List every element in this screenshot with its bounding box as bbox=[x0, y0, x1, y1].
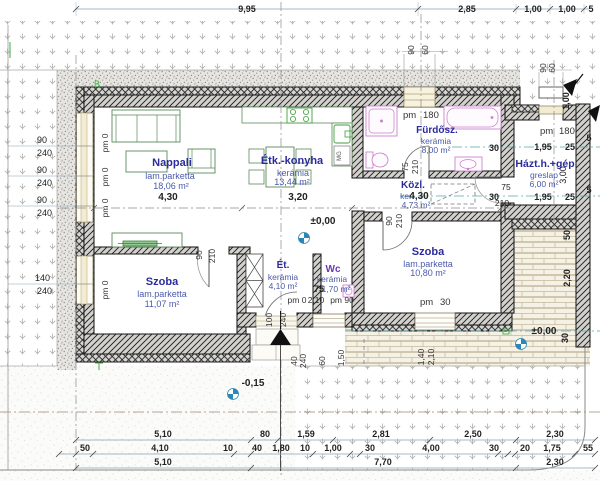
svg-text:90: 90 bbox=[406, 45, 416, 55]
svg-text:40: 40 bbox=[252, 443, 262, 453]
svg-text:2,20: 2,20 bbox=[562, 269, 572, 287]
svg-text:B: B bbox=[94, 79, 100, 89]
svg-text:210: 210 bbox=[410, 160, 420, 174]
svg-text:240: 240 bbox=[37, 286, 52, 296]
svg-text:11,07 m²: 11,07 m² bbox=[145, 299, 180, 309]
svg-text:13,44 m²: 13,44 m² bbox=[274, 177, 310, 187]
svg-text:Szoba: Szoba bbox=[146, 276, 179, 288]
svg-text:50: 50 bbox=[80, 443, 90, 453]
svg-text:1,95: 1,95 bbox=[534, 142, 552, 152]
svg-text:30: 30 bbox=[365, 443, 375, 453]
svg-text:2,50: 2,50 bbox=[464, 429, 482, 439]
svg-text:1,00: 1,00 bbox=[524, 4, 542, 14]
svg-text:MG: MG bbox=[337, 151, 343, 161]
svg-text:25: 25 bbox=[565, 192, 575, 202]
svg-text:18,06 m²: 18,06 m² bbox=[153, 181, 189, 191]
svg-text:Ét.: Ét. bbox=[277, 258, 290, 271]
svg-text:60: 60 bbox=[317, 356, 327, 366]
svg-text:Fürdősz.: Fürdősz. bbox=[416, 125, 458, 136]
svg-text:20: 20 bbox=[520, 443, 530, 453]
svg-text:6,00 m²: 6,00 m² bbox=[530, 179, 559, 189]
svg-text:-0,15: -0,15 bbox=[242, 378, 265, 389]
svg-text:90: 90 bbox=[37, 165, 47, 175]
svg-text:1,59: 1,59 bbox=[297, 429, 315, 439]
svg-text:3,20: 3,20 bbox=[288, 192, 308, 203]
svg-text:60: 60 bbox=[420, 45, 430, 55]
svg-text:90: 90 bbox=[194, 250, 204, 260]
svg-text:1,75: 1,75 bbox=[543, 443, 561, 453]
svg-text:8,00 m²: 8,00 m² bbox=[422, 145, 451, 155]
svg-text:2,10: 2,10 bbox=[426, 348, 436, 365]
svg-text:5: 5 bbox=[588, 4, 593, 14]
svg-text:60: 60 bbox=[547, 63, 557, 73]
svg-text:pm 0: pm 0 bbox=[288, 295, 307, 305]
svg-text:1,00: 1,00 bbox=[561, 92, 571, 110]
svg-text:1,50: 1,50 bbox=[336, 349, 346, 366]
svg-text:Étk.-konyha: Étk.-konyha bbox=[261, 154, 324, 167]
svg-text:5,10: 5,10 bbox=[154, 457, 172, 467]
svg-text:pm 0: pm 0 bbox=[100, 198, 110, 217]
svg-text:240: 240 bbox=[37, 178, 52, 188]
svg-text:2,30: 2,30 bbox=[546, 429, 564, 439]
svg-text:Szoba: Szoba bbox=[412, 246, 445, 258]
svg-text:4,00: 4,00 bbox=[422, 443, 440, 453]
svg-text:1,70 m²: 1,70 m² bbox=[322, 284, 351, 294]
svg-text:4,30: 4,30 bbox=[158, 192, 178, 203]
svg-text:75: 75 bbox=[400, 162, 410, 172]
svg-text:Közl.: Közl. bbox=[401, 180, 425, 191]
svg-text:100: 100 bbox=[264, 313, 274, 327]
svg-text:25: 25 bbox=[565, 142, 575, 152]
svg-text:10: 10 bbox=[300, 443, 310, 453]
svg-text:±0,00: ±0,00 bbox=[311, 216, 336, 227]
svg-text:55: 55 bbox=[583, 443, 593, 453]
svg-text:90: 90 bbox=[37, 195, 47, 205]
svg-text:90: 90 bbox=[384, 216, 394, 226]
svg-text:2,81: 2,81 bbox=[372, 429, 390, 439]
svg-text:9,95: 9,95 bbox=[238, 4, 256, 14]
svg-text:50: 50 bbox=[562, 230, 572, 240]
svg-text:±0,00: ±0,00 bbox=[532, 326, 557, 337]
svg-text:80: 80 bbox=[260, 429, 270, 439]
svg-text:4,73 m²: 4,73 m² bbox=[402, 200, 431, 210]
svg-text:4,10 m²: 4,10 m² bbox=[269, 281, 298, 291]
svg-text:30: 30 bbox=[560, 333, 570, 343]
svg-text:1,00: 1,00 bbox=[558, 4, 576, 14]
svg-text:30: 30 bbox=[489, 443, 499, 453]
svg-text:5: 5 bbox=[586, 185, 591, 195]
svg-text:7,70: 7,70 bbox=[374, 457, 392, 467]
svg-text:pm 0: pm 0 bbox=[100, 280, 110, 299]
svg-text:75: 75 bbox=[501, 182, 511, 192]
svg-text:3,00: 3,00 bbox=[558, 166, 568, 184]
svg-text:90: 90 bbox=[37, 135, 47, 145]
svg-text:240: 240 bbox=[278, 313, 288, 327]
svg-text:pm 90: pm 90 bbox=[330, 295, 354, 305]
svg-text:1,40: 1,40 bbox=[416, 348, 426, 365]
svg-text:30: 30 bbox=[489, 143, 499, 153]
svg-text:5,10: 5,10 bbox=[154, 429, 172, 439]
svg-text:140: 140 bbox=[35, 273, 50, 283]
svg-text:10: 10 bbox=[223, 443, 233, 453]
svg-text:lam.parketta: lam.parketta bbox=[137, 289, 187, 299]
svg-text:pm 0: pm 0 bbox=[100, 133, 110, 152]
svg-text:1,00: 1,00 bbox=[324, 443, 342, 453]
svg-text:210: 210 bbox=[207, 249, 217, 263]
svg-text:2,85: 2,85 bbox=[458, 4, 476, 14]
svg-text:210: 210 bbox=[394, 214, 404, 228]
svg-text:240: 240 bbox=[37, 148, 52, 158]
svg-text:240: 240 bbox=[298, 354, 308, 368]
svg-text:pm 0: pm 0 bbox=[100, 167, 110, 186]
svg-text:2,30: 2,30 bbox=[546, 457, 564, 467]
svg-text:1,80: 1,80 bbox=[272, 443, 290, 453]
svg-text:10,80 m²: 10,80 m² bbox=[410, 268, 446, 278]
svg-text:210: 210 bbox=[495, 198, 509, 208]
svg-text:lam.parketta: lam.parketta bbox=[145, 171, 195, 181]
svg-text:1,95: 1,95 bbox=[534, 192, 552, 202]
svg-text:2,10: 2,10 bbox=[308, 295, 325, 305]
svg-text:Nappali: Nappali bbox=[152, 157, 192, 169]
svg-text:5: 5 bbox=[586, 133, 591, 143]
svg-text:240: 240 bbox=[37, 208, 52, 218]
svg-text:4,10: 4,10 bbox=[151, 443, 169, 453]
svg-text:kerámia: kerámia bbox=[317, 274, 348, 284]
